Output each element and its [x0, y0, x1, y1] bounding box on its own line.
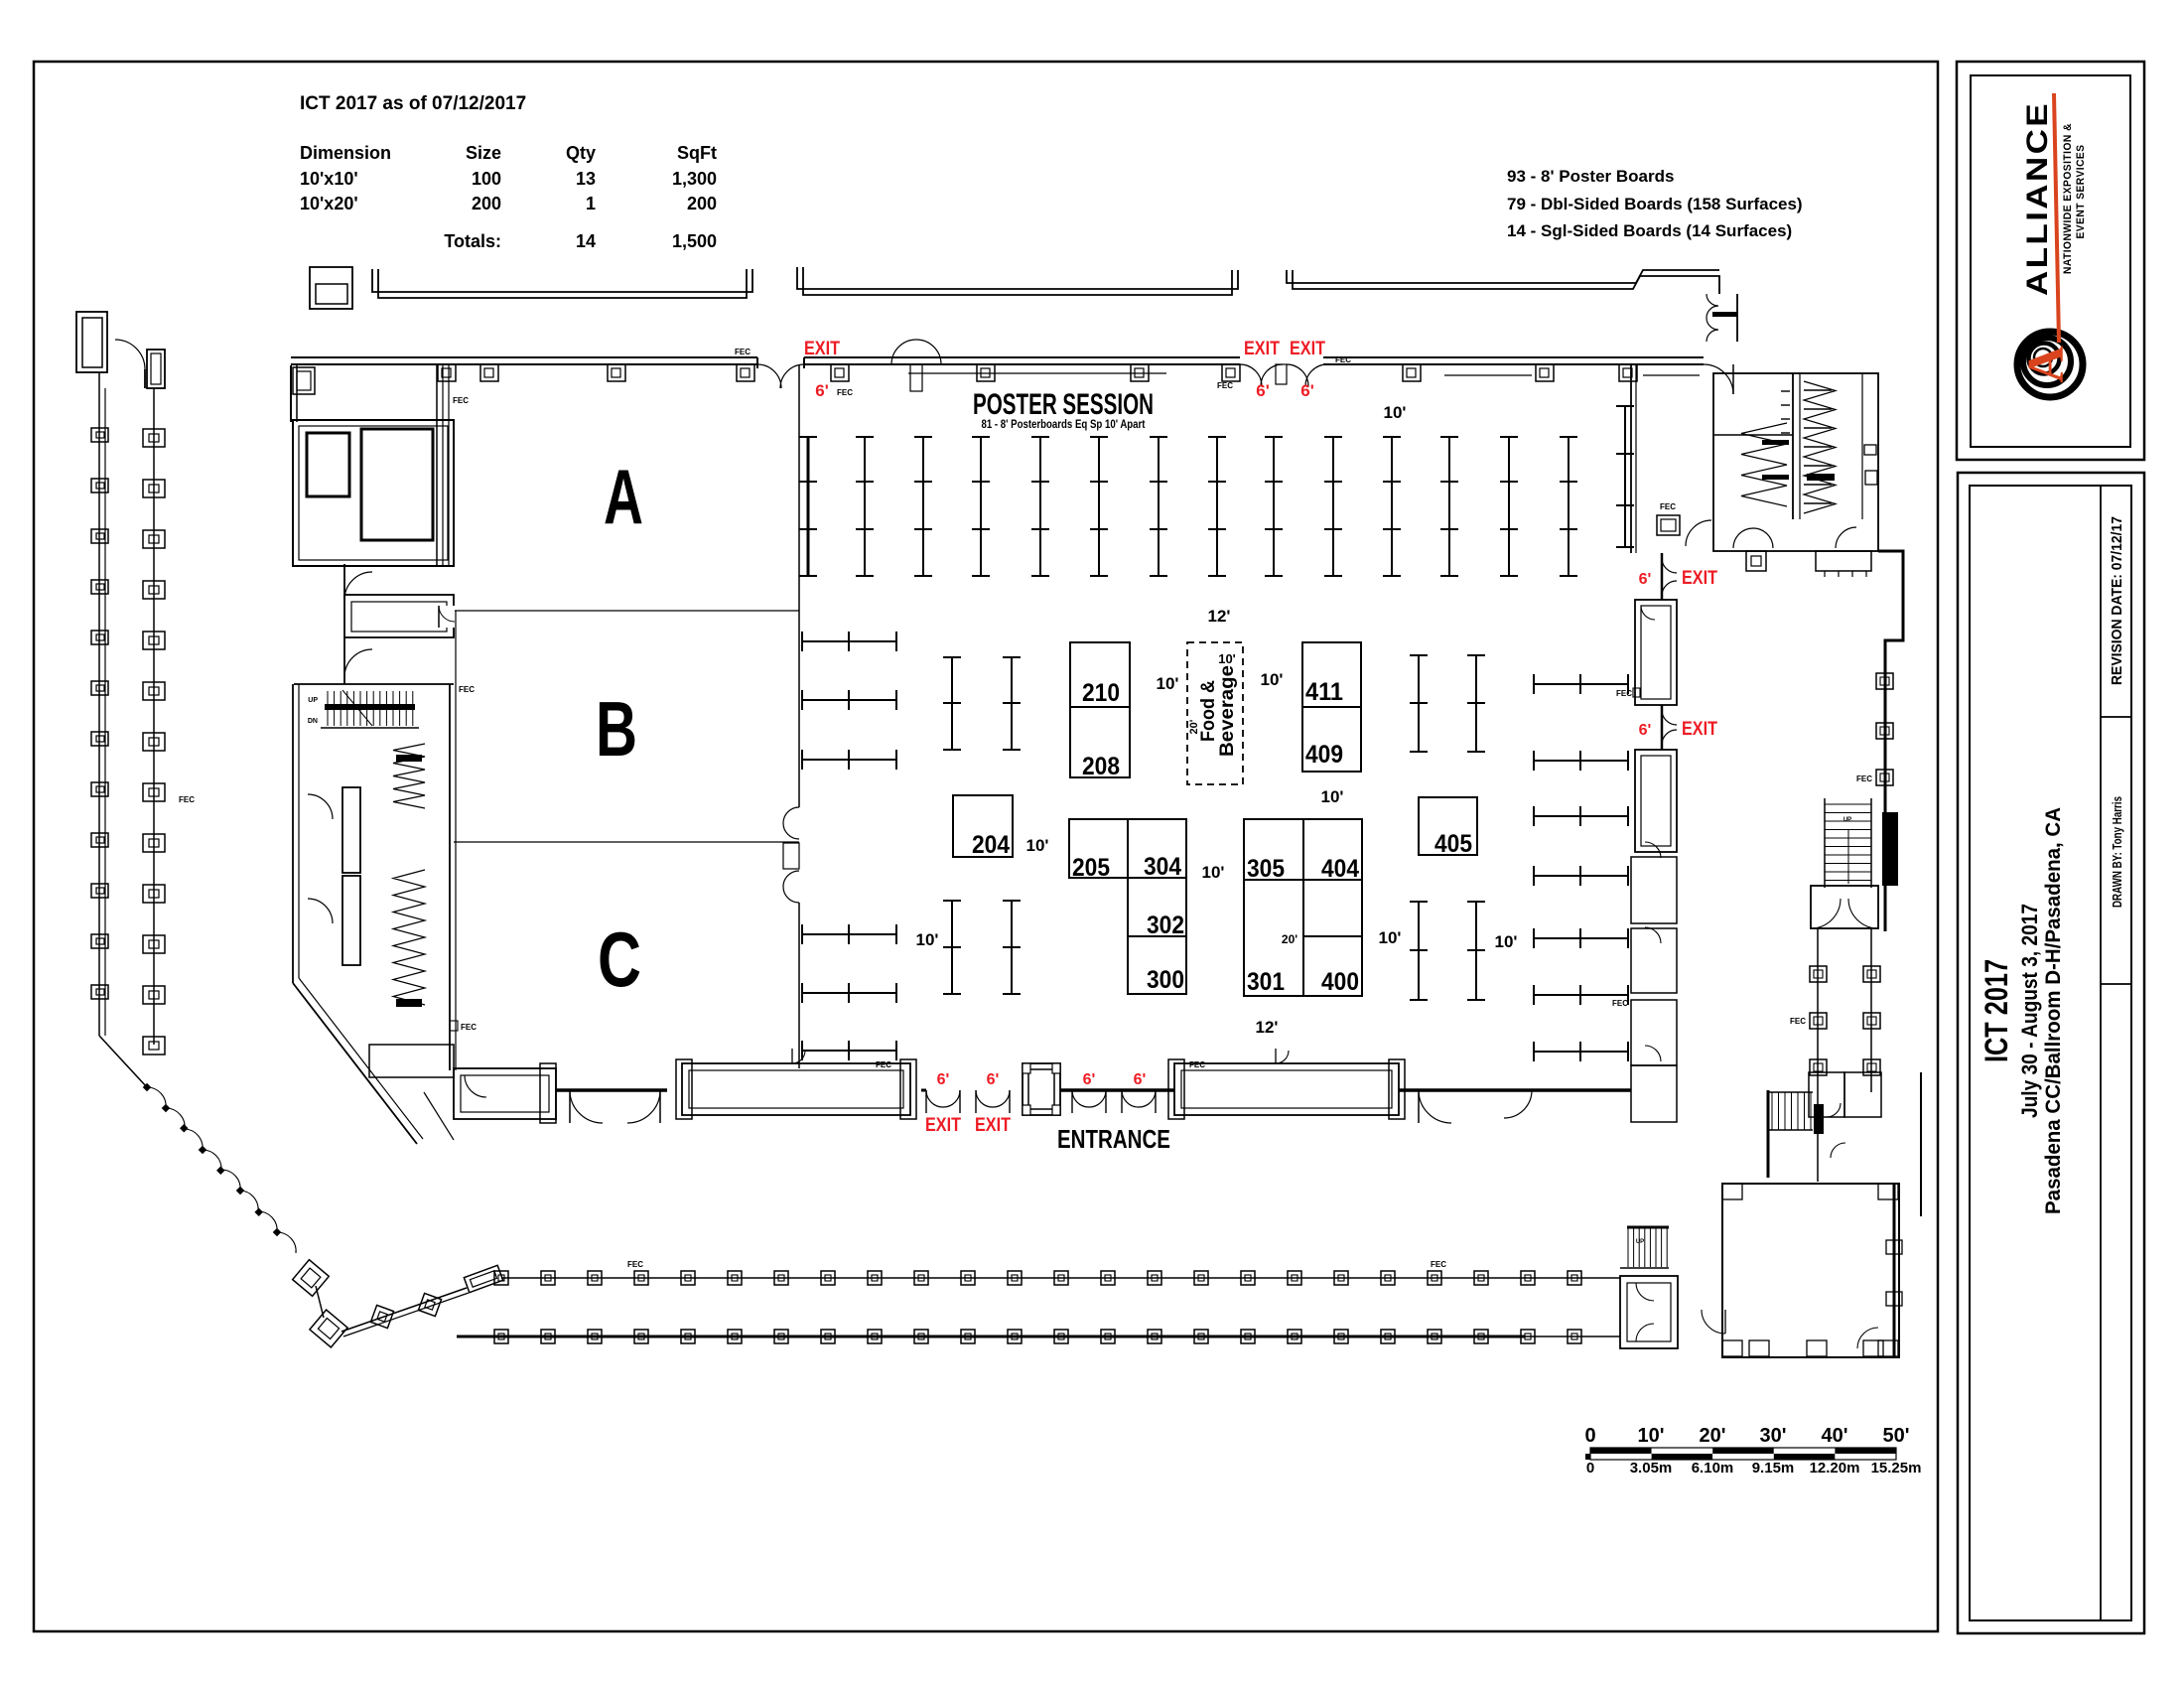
svg-text:40': 40' [1821, 1425, 1847, 1447]
svg-text:FEC: FEC [1612, 999, 1628, 1008]
svg-text:210: 210 [1082, 679, 1120, 707]
svg-text:20': 20' [1699, 1425, 1725, 1447]
svg-text:1: 1 [586, 194, 596, 213]
svg-text:6': 6' [1083, 1071, 1096, 1088]
svg-text:50': 50' [1882, 1425, 1909, 1447]
svg-text:81 - 8' Posterboards Eq Sp 10': 81 - 8' Posterboards Eq Sp 10' Apart [982, 417, 1146, 431]
svg-text:300: 300 [1147, 966, 1184, 994]
svg-text:FEC: FEC [1616, 689, 1632, 698]
svg-text:409: 409 [1305, 741, 1343, 769]
svg-text:10'x20': 10'x20' [300, 194, 358, 213]
svg-text:Totals:: Totals: [444, 231, 501, 251]
svg-text:404: 404 [1321, 855, 1359, 883]
svg-text:ENTRANCE: ENTRANCE [1057, 1124, 1170, 1154]
svg-text:EXIT: EXIT [1290, 339, 1325, 359]
svg-text:100: 100 [472, 169, 501, 189]
svg-text:411: 411 [1305, 678, 1343, 706]
svg-text:FEC: FEC [1856, 774, 1872, 783]
svg-text:July 30 - August 3, 2017: July 30 - August 3, 2017 [2017, 904, 2042, 1118]
svg-text:10': 10' [1495, 932, 1518, 951]
svg-text:6': 6' [987, 1071, 1000, 1088]
svg-text:EVENT SERVICES: EVENT SERVICES [2075, 145, 2087, 239]
svg-text:6': 6' [1639, 571, 1652, 588]
svg-text:6': 6' [1300, 381, 1314, 400]
svg-text:6': 6' [1134, 1071, 1147, 1088]
svg-text:FEC: FEC [461, 1023, 477, 1032]
svg-text:FEC: FEC [627, 1260, 643, 1269]
svg-text:FEC: FEC [1217, 381, 1233, 390]
svg-text:301: 301 [1247, 968, 1285, 996]
svg-text:A: A [604, 453, 643, 540]
svg-text:EXIT: EXIT [1682, 719, 1717, 740]
svg-text:15.25m: 15.25m [1871, 1460, 1922, 1477]
svg-text:200: 200 [472, 194, 501, 213]
svg-text:13: 13 [576, 169, 596, 189]
svg-text:1,500: 1,500 [672, 231, 717, 251]
svg-text:A: A [2018, 346, 2075, 383]
svg-text:Beverage: Beverage [1217, 665, 1238, 757]
svg-text:302: 302 [1147, 912, 1184, 939]
svg-text:EXIT: EXIT [804, 339, 840, 359]
svg-text:0: 0 [1586, 1460, 1594, 1477]
svg-text:205: 205 [1072, 854, 1110, 882]
svg-text:79 - Dbl-Sided Boards (158 Sur: 79 - Dbl-Sided Boards (158 Surfaces) [1507, 195, 1803, 213]
svg-text:10': 10' [1026, 836, 1049, 855]
svg-text:14: 14 [576, 231, 596, 251]
svg-text:EXIT: EXIT [925, 1115, 961, 1136]
svg-text:10': 10' [1379, 928, 1402, 947]
svg-text:6': 6' [1256, 381, 1270, 400]
svg-text:FEC: FEC [453, 396, 469, 405]
svg-text:FEC: FEC [1189, 1060, 1205, 1069]
svg-text:B: B [596, 685, 637, 773]
svg-text:ICT 2017 as of 07/12/2017: ICT 2017 as of 07/12/2017 [300, 93, 526, 114]
svg-text:FEC: FEC [1660, 502, 1676, 511]
svg-text:EXIT: EXIT [1682, 568, 1717, 589]
svg-text:405: 405 [1434, 830, 1472, 858]
svg-text:UP: UP [1843, 817, 1851, 823]
svg-text:REVISION DATE: 07/12/17: REVISION DATE: 07/12/17 [2109, 516, 2125, 685]
svg-text:6.10m: 6.10m [1692, 1460, 1734, 1477]
svg-text:10': 10' [1202, 863, 1225, 882]
svg-text:6': 6' [937, 1071, 950, 1088]
svg-text:DRAWN BY: Tony Harris: DRAWN BY: Tony Harris [2110, 796, 2124, 908]
svg-text:20': 20' [1282, 932, 1297, 946]
svg-text:10': 10' [1321, 787, 1344, 806]
svg-text:UP: UP [308, 697, 318, 704]
svg-text:EXIT: EXIT [1244, 339, 1280, 359]
svg-text:9.15m: 9.15m [1752, 1460, 1795, 1477]
svg-text:Qty: Qty [566, 143, 596, 163]
svg-text:12': 12' [1208, 607, 1231, 626]
svg-text:0: 0 [1584, 1425, 1595, 1447]
svg-text:304: 304 [1144, 853, 1181, 881]
svg-text:14 - Sgl-Sided Boards (14 Surf: 14 - Sgl-Sided Boards (14 Surfaces) [1507, 221, 1792, 240]
svg-text:UP: UP [1636, 1239, 1644, 1245]
svg-text:FEC: FEC [179, 795, 195, 804]
svg-text:204: 204 [972, 831, 1010, 859]
svg-text:10': 10' [1384, 403, 1407, 422]
svg-text:12': 12' [1256, 1018, 1279, 1037]
svg-text:FEC: FEC [1790, 1017, 1806, 1026]
svg-text:20': 20' [1188, 719, 1200, 734]
svg-text:10': 10' [1218, 651, 1236, 666]
svg-text:NATIONWIDE EXPOSITION &: NATIONWIDE EXPOSITION & [2062, 123, 2074, 274]
svg-text:10'x10': 10'x10' [300, 169, 358, 189]
svg-text:10': 10' [916, 930, 939, 949]
svg-text:FEC: FEC [1335, 355, 1351, 364]
svg-text:ALLIANCE: ALLIANCE [2021, 101, 2054, 296]
svg-text:SqFt: SqFt [677, 143, 717, 163]
svg-text:FEC: FEC [459, 685, 475, 694]
svg-text:ICT 2017: ICT 2017 [1979, 959, 2014, 1062]
svg-text:Food &: Food & [1198, 680, 1219, 742]
svg-text:400: 400 [1321, 968, 1359, 996]
svg-text:DN: DN [308, 718, 318, 725]
svg-text:Pasadena CC/Ballroom D-H/Pasad: Pasadena CC/Ballroom D-H/Pasadena, CA [2042, 807, 2065, 1214]
svg-text:FEC: FEC [1431, 1260, 1446, 1269]
svg-text:6': 6' [1639, 722, 1652, 739]
svg-text:10': 10' [1261, 670, 1284, 689]
svg-text:FEC: FEC [876, 1060, 891, 1069]
svg-text:C: C [598, 915, 641, 1003]
svg-text:1,300: 1,300 [672, 169, 717, 189]
svg-text:Size: Size [466, 143, 501, 163]
svg-text:30': 30' [1759, 1425, 1786, 1447]
svg-text:6': 6' [815, 381, 829, 400]
svg-text:FEC: FEC [735, 348, 751, 356]
svg-text:93 - 8' Poster Boards: 93 - 8' Poster Boards [1507, 167, 1674, 186]
svg-text:EXIT: EXIT [975, 1115, 1011, 1136]
svg-text:10': 10' [1157, 674, 1179, 693]
svg-text:10': 10' [1637, 1425, 1664, 1447]
svg-text:FEC: FEC [837, 388, 853, 397]
svg-text:305: 305 [1247, 855, 1285, 883]
svg-text:3.05m: 3.05m [1630, 1460, 1673, 1477]
svg-text:200: 200 [687, 194, 717, 213]
svg-text:208: 208 [1082, 753, 1120, 780]
svg-text:12.20m: 12.20m [1810, 1460, 1860, 1477]
svg-text:Dimension: Dimension [300, 143, 391, 163]
